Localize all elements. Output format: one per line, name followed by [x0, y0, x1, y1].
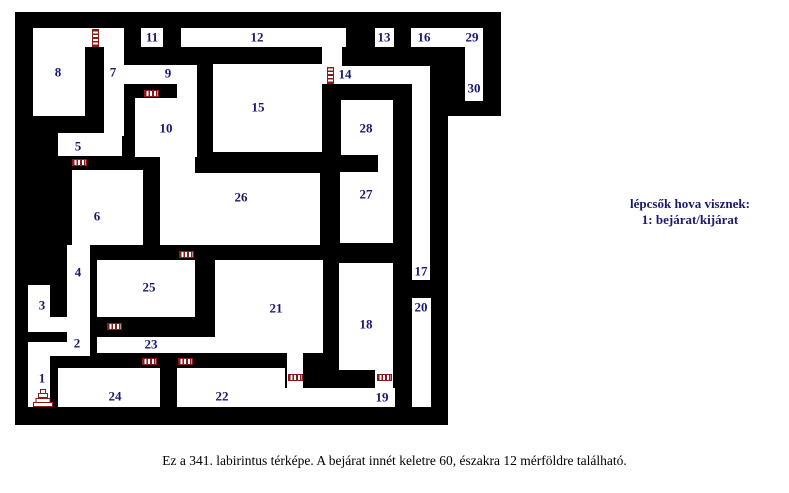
- room-label-14: 14: [339, 68, 352, 81]
- maze-room-area-9: [160, 152, 195, 174]
- room-label-13: 13: [378, 31, 391, 44]
- legend-entry-1: 1: bejárat/kijárat: [585, 212, 789, 228]
- room-label-20: 20: [415, 301, 428, 314]
- room-label-25: 25: [143, 281, 156, 294]
- room-label-16: 16: [418, 31, 431, 44]
- stairs-step: [38, 393, 48, 398]
- room-label-24: 24: [109, 390, 122, 403]
- ladder-icon-0: [92, 29, 99, 47]
- room-label-11: 11: [146, 31, 158, 44]
- room-label-18: 18: [360, 318, 373, 331]
- room-label-29: 29: [466, 31, 479, 44]
- ladder-icon-8: [288, 374, 303, 381]
- maze-room-area-10: [213, 64, 322, 152]
- maze-room-area-35: [412, 84, 430, 280]
- ladder-icon-6: [142, 358, 157, 365]
- room-label-12: 12: [251, 31, 264, 44]
- room-label-8: 8: [55, 66, 62, 79]
- ladder-icon-4: [179, 251, 194, 258]
- room-label-4: 4: [75, 266, 82, 279]
- maze-room-area-23: [28, 317, 90, 332]
- legend-title: lépcsők hova visznek:: [585, 196, 789, 212]
- labyrinth-map-page: 1234567891011121314151617181920212223242…: [0, 0, 789, 493]
- stairs-icon: [33, 388, 53, 407]
- maze-room-area-17: [340, 172, 393, 243]
- maze-room-area-19: [58, 133, 122, 156]
- stairs-step: [33, 402, 53, 407]
- room-label-26: 26: [235, 191, 248, 204]
- stairs-legend: lépcsők hova visznek: 1: bejárat/kijárat: [585, 196, 789, 228]
- ladder-icon-5: [107, 323, 122, 330]
- stairs-step: [36, 398, 51, 403]
- room-label-22: 22: [216, 390, 229, 403]
- room-label-6: 6: [94, 210, 101, 223]
- room-label-28: 28: [360, 122, 373, 135]
- maze-room-area-5: [322, 45, 342, 68]
- room-label-21: 21: [270, 302, 283, 315]
- maze-room-area-7: [177, 65, 197, 98]
- room-label-10: 10: [160, 122, 173, 135]
- ladder-icon-3: [72, 159, 87, 166]
- room-label-3: 3: [39, 299, 46, 312]
- room-label-1: 1: [39, 372, 46, 385]
- room-label-9: 9: [165, 67, 172, 80]
- maze-room-area-20: [72, 170, 143, 245]
- room-label-30: 30: [468, 82, 481, 95]
- maze-room-area-18: [160, 173, 320, 245]
- room-label-5: 5: [75, 140, 82, 153]
- room-label-17: 17: [415, 265, 428, 278]
- room-label-7: 7: [110, 66, 117, 79]
- ladder-icon-1: [144, 90, 159, 97]
- room-label-2: 2: [74, 337, 81, 350]
- map-caption: Ez a 341. labirintus térképe. A bejárat …: [0, 453, 789, 469]
- room-label-15: 15: [252, 101, 265, 114]
- ladder-icon-7: [178, 358, 193, 365]
- room-label-27: 27: [360, 188, 373, 201]
- ladder-icon-2: [327, 67, 334, 84]
- stairs-step: [40, 389, 46, 394]
- room-label-19: 19: [376, 391, 389, 404]
- ladder-icon-9: [377, 374, 392, 381]
- maze-map: 1234567891011121314151617181920212223242…: [0, 0, 789, 493]
- room-label-23: 23: [145, 338, 158, 351]
